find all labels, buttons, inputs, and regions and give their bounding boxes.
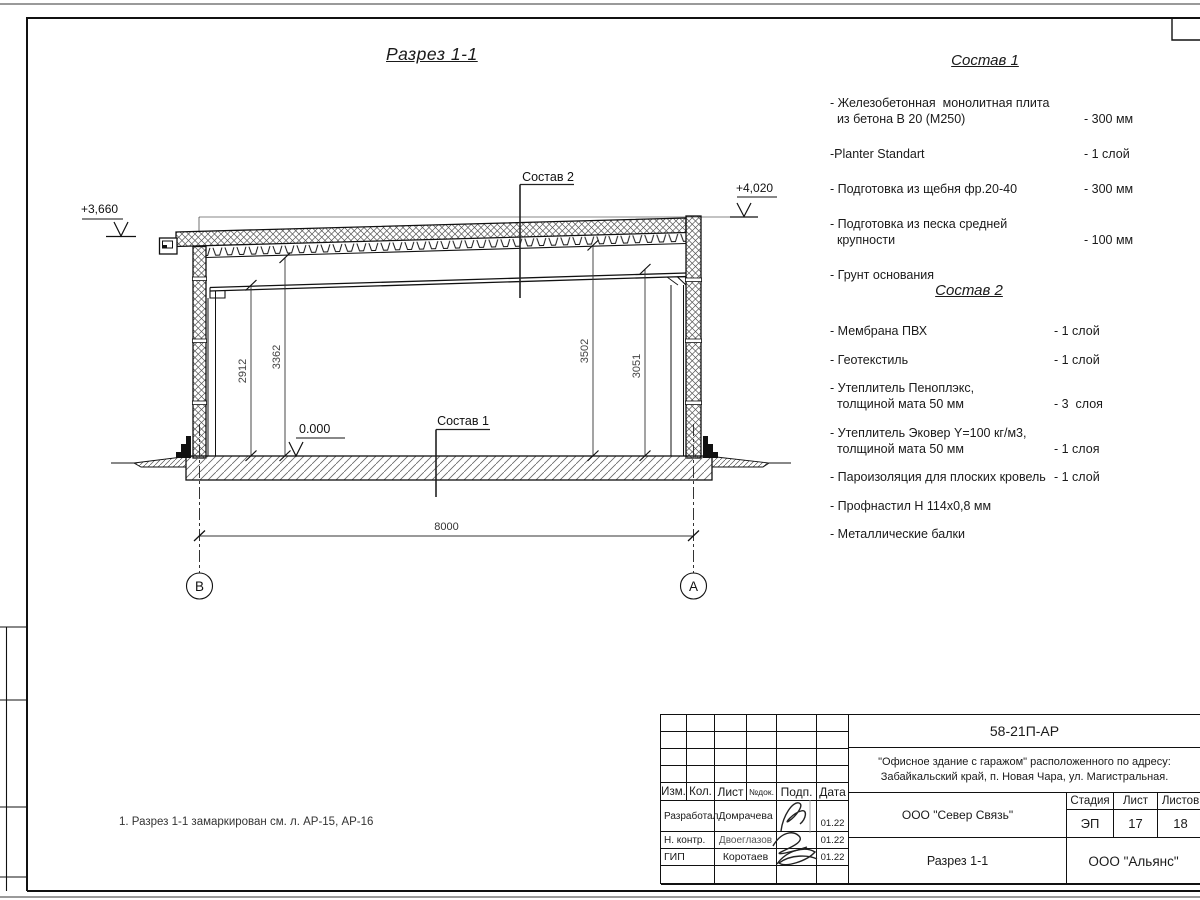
tb-empty-cell [747, 749, 777, 766]
spec-list-1: Состав 1 - Железобетонная монолитная пли… [830, 52, 1140, 283]
axis-label-right: А [689, 579, 698, 594]
spec-item-name: - Профнастил Н 114х0,8 мм [830, 498, 1054, 514]
tb-empty-cell [777, 732, 817, 749]
ref-sostav2: Состав 2 [522, 170, 574, 184]
tb-empty-cell [715, 749, 747, 766]
tb-stage-value: ЭП [1067, 810, 1114, 838]
building-section [111, 216, 791, 480]
spec-list-2: Состав 2 - Мембрана ПВХ - 1 слой - Геоте… [830, 282, 1108, 542]
tb-empty-cell [661, 866, 715, 885]
tb-empty-cell [661, 749, 687, 766]
tb-empty-cell [687, 715, 715, 732]
tb-empty-cell [687, 732, 715, 749]
spec2-item: - Металлические балки [830, 526, 1108, 542]
spec-item-name: - Грунт основания [830, 267, 1084, 283]
tb-sheets-value: 18 [1158, 810, 1200, 838]
tb-header-kol: Кол. [687, 783, 715, 801]
tb-empty-cell [715, 715, 747, 732]
spec1-item: - Грунт основания [830, 267, 1140, 283]
tb-name: Коротаев [715, 849, 777, 866]
spec-leaders: Состав 2 Состав 1 [436, 170, 574, 497]
spec-item-name: - Утеплитель Эковер Y=100 кг/м3, толщино… [830, 425, 1054, 457]
tb-empty-cell [747, 732, 777, 749]
floor-slab [186, 456, 712, 480]
tb-role: Разработал [661, 801, 715, 832]
tb-sheet-value: 17 [1114, 810, 1158, 838]
spec1-title: Состав 1 [830, 52, 1140, 69]
tb-stage-label: Стадия [1067, 793, 1114, 810]
tb-empty-cell [715, 732, 747, 749]
tb-sheets-label: Листов [1158, 793, 1200, 810]
spec-item-value: - 1 слой [1084, 146, 1140, 162]
tb-empty-cell [817, 749, 849, 766]
tb-header-izm: Изм. [661, 783, 687, 801]
spec2-item: - Утеплитель Эковер Y=100 кг/м3, толщино… [830, 425, 1108, 457]
tb-empty-cell [687, 766, 715, 783]
tb-empty-cell [661, 715, 687, 732]
spec-item-value: - 300 мм [1084, 181, 1140, 197]
spec2-item: - Утеплитель Пеноплэкс, толщиной мата 50… [830, 380, 1108, 412]
tb-empty-cell [715, 766, 747, 783]
spec2-item: - Мембрана ПВХ - 1 слой [830, 323, 1108, 339]
tb-project-description: "Офисное здание с гаражом" расположенног… [849, 748, 1200, 793]
spec1-item: - Железобетонная монолитная плита из бет… [830, 95, 1140, 127]
tb-name: Двоеглазов [715, 832, 777, 849]
spec-item-name: - Металлические балки [830, 526, 1054, 542]
spec-item-name: -Planter Standart [830, 146, 1084, 162]
sheet-note: 1. Разрез 1-1 замаркирован см. л. АР-15,… [119, 816, 373, 828]
spec-item-name: - Мембрана ПВХ [830, 323, 1054, 339]
spec-item-name: - Подготовка из щебня фр.20-40 [830, 181, 1084, 197]
signature-gip [769, 828, 825, 872]
spec-item-value: - 1 слой [1054, 469, 1108, 485]
spec2-item: - Геотекстиль - 1 слой [830, 352, 1108, 368]
spec-item-name: - Утеплитель Пеноплэкс, толщиной мата 50… [830, 380, 1054, 412]
tb-sheet-label: Лист [1114, 793, 1158, 810]
tb-firm: ООО "Альянс" [1067, 838, 1200, 885]
spec1-item: -Planter Standart - 1 слой [830, 146, 1140, 162]
spec-item-name: - Пароизоляция для плоских кровель [830, 469, 1054, 485]
spec-item-value: - 1 слой [1054, 352, 1108, 368]
tb-role: ГИП [661, 849, 715, 866]
tb-empty-cell [777, 749, 817, 766]
spec-item-value: - 100 мм [1084, 232, 1140, 248]
spec2-item: - Пароизоляция для плоских кровель - 1 с… [830, 469, 1108, 485]
wall-joints [192, 277, 701, 405]
drawing-sheet: В А 8000 2912 3362 3502 3051 [0, 0, 1200, 900]
tb-sheet-title: Разрез 1-1 [849, 838, 1067, 885]
tb-empty-cell [715, 866, 777, 885]
tb-header-list: Лист [715, 783, 747, 801]
dim-span: 8000 [434, 521, 458, 533]
elev-left-label: +3,660 [81, 202, 118, 216]
spec-item-name: - Железобетонная монолитная плита из бет… [830, 95, 1084, 127]
spec2-title: Состав 2 [830, 282, 1108, 299]
right-apron [712, 457, 769, 468]
tb-empty-cell [777, 715, 817, 732]
tb-empty-cell [747, 766, 777, 783]
roof-edge-detail [160, 238, 178, 254]
tb-empty-cell [687, 749, 715, 766]
axes: В А [187, 424, 707, 599]
spec1-item: - Подготовка из песка средней крупности … [830, 216, 1140, 248]
dim-right-inner: 3051 [631, 354, 643, 378]
section-title: Разрез 1-1 [386, 44, 478, 65]
spec-item-value: - 1 слой [1054, 323, 1108, 339]
tb-role: Н. контр. [661, 832, 715, 849]
tb-empty-cell [747, 715, 777, 732]
tb-company: ООО "Север Связь" [849, 793, 1067, 838]
spec-item-value: - 1 слоя [1054, 441, 1108, 457]
elev-floor-label: 0.000 [299, 422, 330, 436]
spec-item-name: - Геотекстиль [830, 352, 1054, 368]
elev-right-label: +4,020 [736, 181, 773, 195]
roof-beam [210, 273, 686, 298]
tb-empty-cell [817, 732, 849, 749]
tb-empty-cell [661, 732, 687, 749]
dim-left-outer: 3362 [271, 345, 283, 369]
spec-item-value: - 300 мм [1084, 111, 1140, 127]
spec-item-name: - Подготовка из песка средней крупности [830, 216, 1084, 248]
right-wall [686, 216, 701, 458]
tb-empty-cell [661, 766, 687, 783]
spec-item-value: - 3 слоя [1054, 396, 1108, 412]
axis-label-left: В [195, 579, 204, 594]
left-apron [134, 457, 186, 468]
tb-name: Домрачева [715, 801, 777, 832]
title-block: Изм. Кол. Лист №док. Подп. Дата Разработ… [660, 714, 1200, 884]
tb-empty-cell [817, 715, 849, 732]
dim-left-inner: 2912 [237, 359, 249, 383]
spec1-item: - Подготовка из щебня фр.20-40 - 300 мм [830, 181, 1140, 197]
tb-doc-number: 58-21П-АР [849, 715, 1200, 748]
plinth-details [176, 436, 718, 458]
tb-empty-cell [817, 766, 849, 783]
ref-sostav1: Состав 1 [437, 414, 489, 428]
dim-right-outer: 3502 [579, 339, 591, 363]
tb-empty-cell [777, 766, 817, 783]
spec2-item: - Профнастил Н 114х0,8 мм [830, 498, 1108, 514]
